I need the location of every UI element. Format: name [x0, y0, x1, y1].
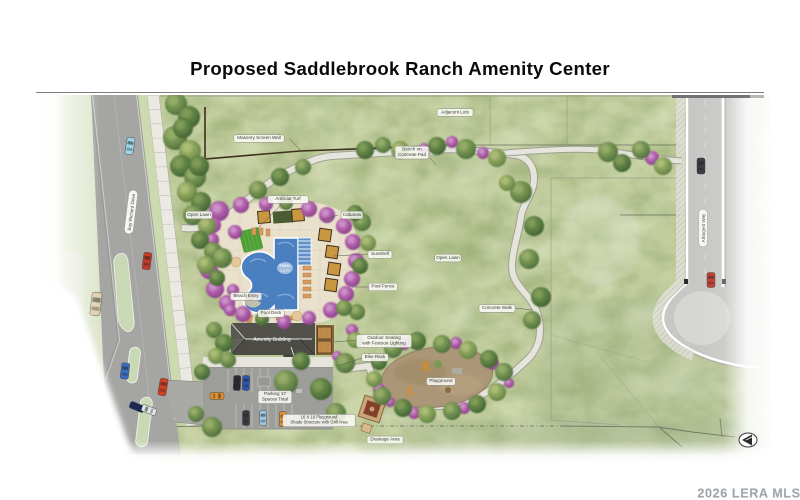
svg-text:POOL: POOL — [279, 263, 291, 268]
svg-text:Pool Deck: Pool Deck — [261, 310, 283, 315]
svg-text:Sunshelf: Sunshelf — [371, 251, 390, 256]
svg-text:Concrete Walk: Concrete Walk — [482, 305, 513, 310]
svg-text:Artificial Turf: Artificial Turf — [275, 196, 301, 201]
svg-text:Shade Structure with Grill Are: Shade Structure with Grill Area — [290, 420, 348, 425]
svg-text:Open Lawn: Open Lawn — [187, 212, 211, 217]
svg-text:Amenity Building: Amenity Building — [253, 337, 290, 343]
svg-text:Bike Rack: Bike Rack — [365, 354, 386, 359]
svg-text:Proposed Saddlebrook Ranch Ame: Proposed Saddlebrook Ranch Amenity Cente… — [190, 58, 610, 79]
svg-text:Beach Entry: Beach Entry — [233, 293, 259, 298]
svg-text:Adjacent Lots: Adjacent Lots — [441, 109, 470, 114]
svg-text:Cabanas: Cabanas — [343, 212, 362, 217]
svg-text:Spaces Total: Spaces Total — [262, 396, 288, 401]
svg-text:Concrete Pad: Concrete Pad — [398, 152, 427, 157]
svg-text:Pool Fence: Pool Fence — [371, 284, 395, 289]
svg-text:Open Lawn: Open Lawn — [436, 255, 460, 260]
svg-text:Drainage Area: Drainage Area — [370, 437, 400, 442]
svg-text:with Festoon Lighting: with Festoon Lighting — [362, 340, 406, 345]
svg-text:3.5 FT: 3.5 FT — [280, 269, 290, 273]
svg-text:Masonry Screen Wall: Masonry Screen Wall — [237, 135, 280, 140]
svg-text:2026 LERA MLS: 2026 LERA MLS — [697, 487, 800, 500]
svg-text:Playground: Playground — [429, 378, 453, 383]
